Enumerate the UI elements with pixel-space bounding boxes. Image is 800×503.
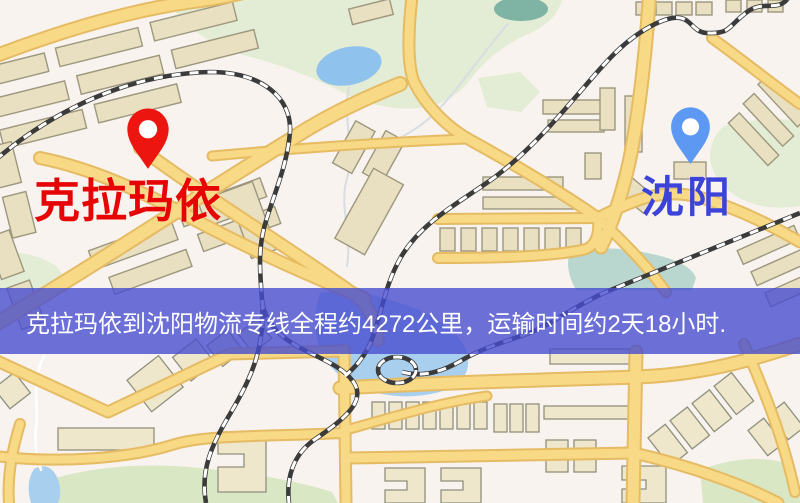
origin-marker[interactable] bbox=[124, 107, 172, 171]
pin-body bbox=[671, 107, 710, 164]
logistics-route-map: 克拉玛依 沈阳 克拉玛依到沈阳物流专线全程约4272公里，运输时间约2天18小时… bbox=[0, 0, 800, 503]
pin-hole bbox=[139, 120, 157, 138]
route-info-text: 克拉玛依到沈阳物流专线全程约4272公里，运输时间约2天18小时. bbox=[0, 304, 726, 339]
map-canvas bbox=[0, 0, 800, 503]
origin-label: 克拉玛依 bbox=[34, 178, 222, 224]
pin-body bbox=[127, 108, 168, 168]
pin-hole bbox=[682, 118, 699, 135]
map-pin-icon bbox=[124, 107, 172, 171]
route-info-banner: 克拉玛依到沈阳物流专线全程约4272公里，运输时间约2天18小时. bbox=[0, 288, 800, 354]
destination-label: 沈阳 bbox=[641, 177, 733, 220]
map-pin-icon bbox=[668, 106, 713, 166]
destination-marker[interactable] bbox=[668, 106, 713, 166]
